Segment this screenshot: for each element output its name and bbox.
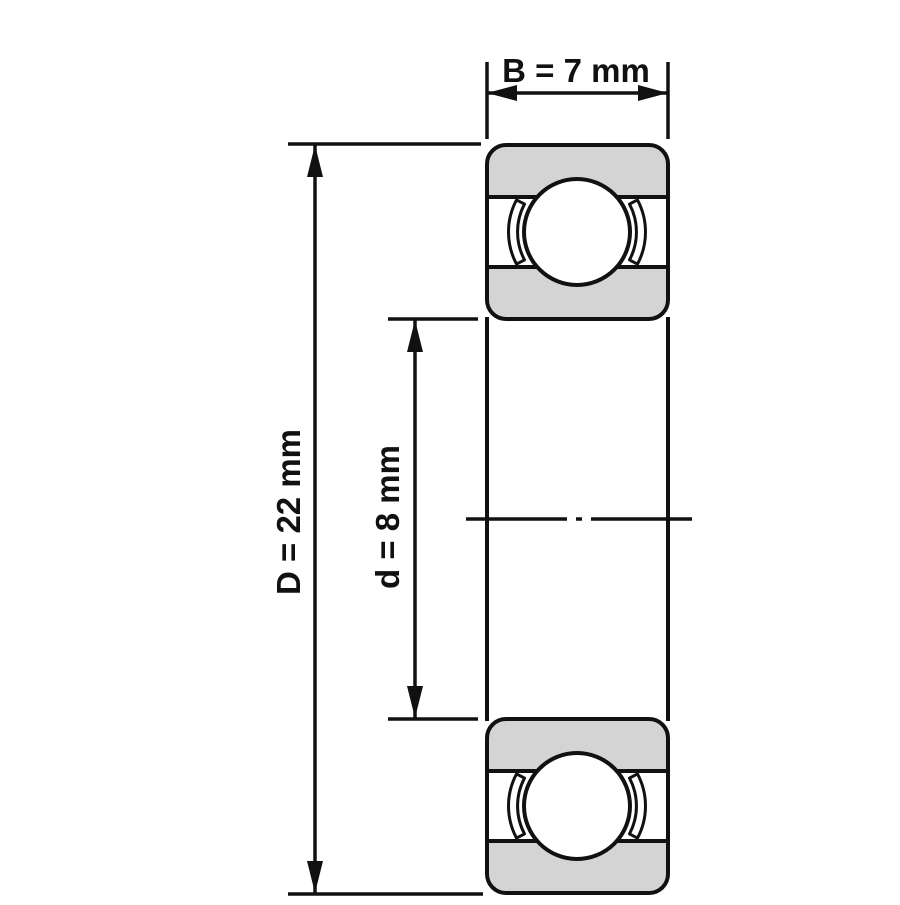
ball-top — [524, 179, 630, 285]
dimension-label-width: B = 7 mm — [502, 52, 650, 89]
dimension-label-bore-diameter: d = 8 mm — [369, 445, 406, 589]
dimension-bore-diameter-d: d = 8 mm — [369, 319, 478, 719]
arrowhead-d-bore-bottom-icon — [407, 686, 423, 718]
bearing-drawing-canvas: B = 7 mm D = 22 mm d = 8 mm — [0, 0, 900, 900]
ring-section-top — [487, 145, 668, 319]
bearing-technical-drawing: B = 7 mm D = 22 mm d = 8 mm — [0, 0, 900, 900]
arrowhead-d-outer-top-icon — [307, 145, 323, 177]
ball-bottom — [524, 753, 630, 859]
bearing-cross-section — [466, 145, 692, 893]
dimension-width-B: B = 7 mm — [487, 52, 668, 139]
arrowhead-d-outer-bottom-icon — [307, 861, 323, 893]
ring-section-bottom — [487, 719, 668, 893]
dimension-label-outer-diameter: D = 22 mm — [270, 429, 307, 595]
arrowhead-d-bore-top-icon — [407, 320, 423, 352]
